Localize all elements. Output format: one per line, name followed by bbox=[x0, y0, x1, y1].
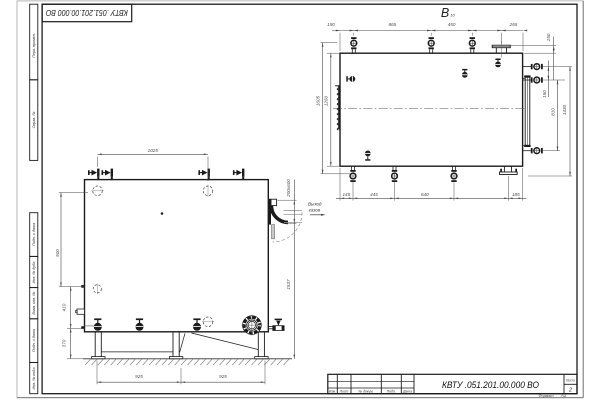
svg-text:640: 640 bbox=[421, 192, 429, 197]
svg-text:150: 150 bbox=[327, 22, 335, 27]
svg-text:Инв. № подл.: Инв. № подл. bbox=[32, 367, 36, 390]
svg-text:Лист: Лист bbox=[339, 390, 349, 394]
svg-text:КВТУ .051.201.00.000 ВО: КВТУ .051.201.00.000 ВО bbox=[45, 8, 127, 18]
svg-text:Дата: Дата bbox=[402, 390, 412, 394]
svg-text:445: 445 bbox=[370, 192, 378, 197]
svg-text:925: 925 bbox=[135, 374, 143, 379]
svg-text:2: 2 bbox=[568, 388, 572, 394]
svg-text:А3: А3 bbox=[560, 393, 567, 398]
svg-text:Справ. №: Справ. № bbox=[32, 112, 36, 129]
svg-text:Лист: Лист bbox=[565, 379, 575, 383]
svg-text:810: 810 bbox=[551, 108, 556, 116]
svg-text:925: 925 bbox=[219, 374, 227, 379]
svg-text:Подп.: Подп. bbox=[387, 390, 396, 394]
svg-text:450: 450 bbox=[448, 22, 456, 27]
svg-text:145: 145 bbox=[342, 192, 350, 197]
svg-text:865: 865 bbox=[389, 22, 397, 27]
svg-text:№ докум.: № докум. bbox=[359, 390, 374, 394]
svg-text:265: 265 bbox=[509, 22, 518, 27]
svg-text:Изм.: Изм. bbox=[329, 390, 336, 394]
svg-text:газов: газов bbox=[309, 207, 321, 212]
svg-text:Подп. и дата: Подп. и дата bbox=[32, 329, 36, 352]
svg-text:500: 500 bbox=[55, 249, 60, 257]
svg-text:1025: 1025 bbox=[148, 148, 159, 153]
svg-text:200х600: 200х600 bbox=[286, 179, 291, 198]
svg-text:370: 370 bbox=[62, 339, 67, 347]
svg-text:Выход: Выход bbox=[308, 202, 322, 207]
svg-text:1260: 1260 bbox=[323, 95, 328, 106]
svg-text:Формат: Формат bbox=[538, 394, 553, 398]
svg-text:1430: 1430 bbox=[562, 104, 567, 115]
svg-text:В: В bbox=[441, 6, 449, 20]
svg-text:КВТУ .051.201.00.000 ВО: КВТУ .051.201.00.000 ВО bbox=[442, 380, 539, 391]
svg-text:Перв. примен.: Перв. примен. bbox=[32, 33, 36, 58]
svg-text:1537: 1537 bbox=[286, 279, 291, 290]
svg-text:1605: 1605 bbox=[315, 95, 320, 106]
svg-text:10: 10 bbox=[450, 13, 455, 18]
svg-text:Взам. инв. №: Взам. инв. № bbox=[32, 292, 36, 315]
svg-text:185: 185 bbox=[512, 192, 520, 197]
svg-text:150: 150 bbox=[546, 33, 551, 41]
svg-text:Подп. и дата: Подп. и дата bbox=[32, 223, 36, 246]
svg-text:150: 150 bbox=[542, 90, 547, 98]
svg-text:410: 410 bbox=[62, 303, 67, 311]
svg-text:Инв. № дубл.: Инв. № дубл. bbox=[32, 261, 36, 284]
